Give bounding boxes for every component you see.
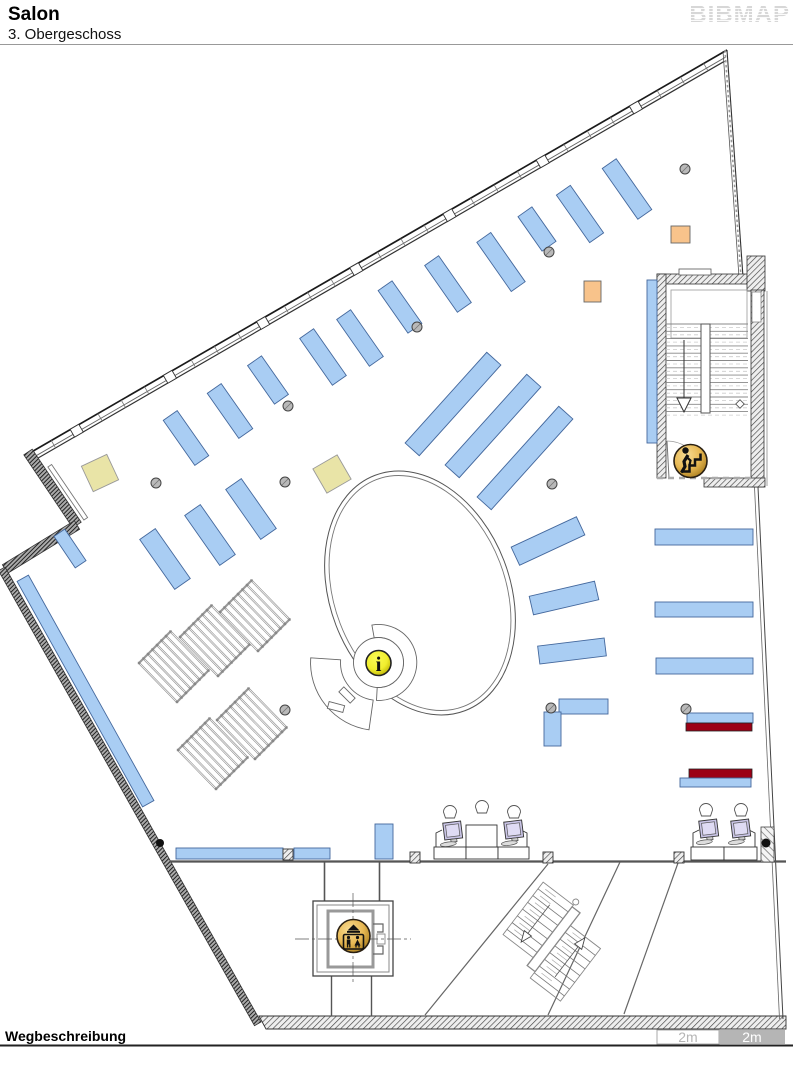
svg-text:2m: 2m (678, 1029, 697, 1045)
svg-text:i: i (376, 652, 382, 676)
svg-text:BIBMAP: BIBMAP (689, 1, 790, 28)
svg-text:Salon: Salon (8, 4, 60, 25)
svg-text:Wegbeschreibung: Wegbeschreibung (5, 1028, 126, 1044)
svg-text:3. Obergeschoss: 3. Obergeschoss (8, 26, 121, 43)
svg-text:2m: 2m (742, 1029, 761, 1045)
